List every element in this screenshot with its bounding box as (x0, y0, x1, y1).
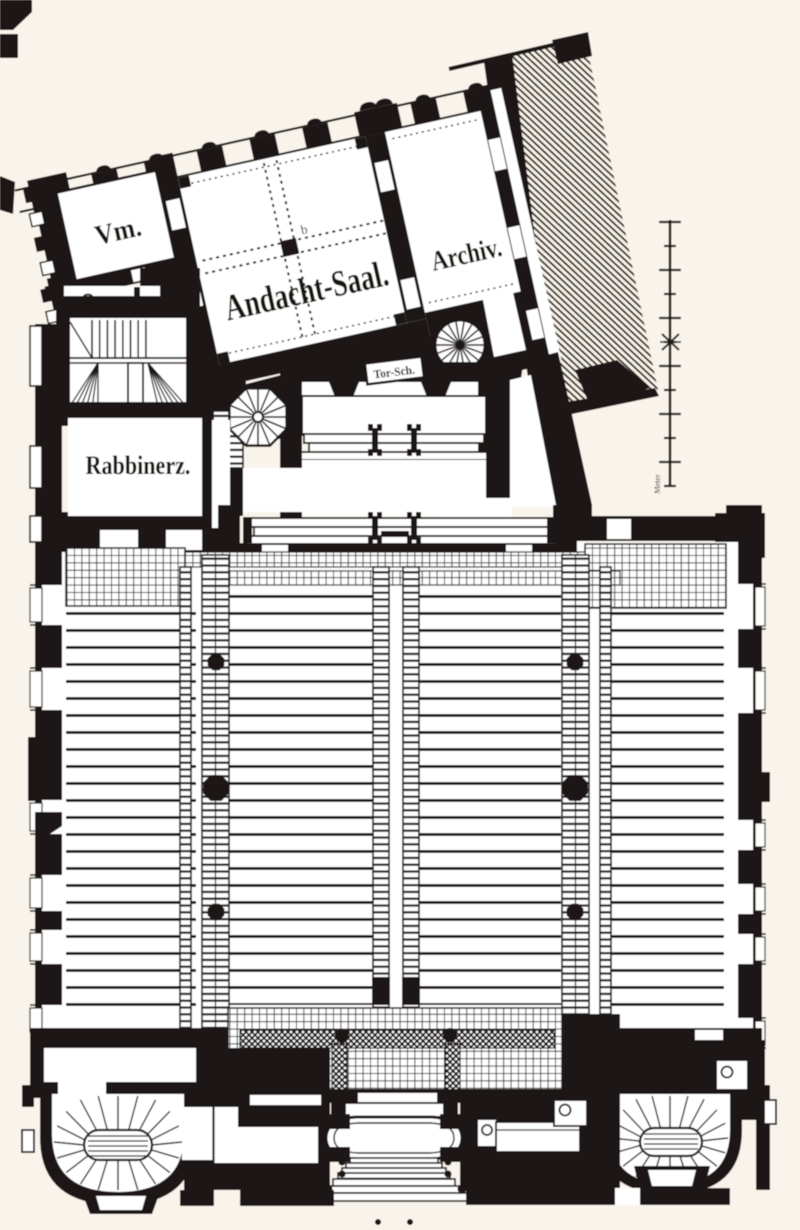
svg-text:Meter: Meter (653, 474, 662, 493)
svg-text:Rabbinerz.: Rabbinerz. (86, 452, 191, 480)
